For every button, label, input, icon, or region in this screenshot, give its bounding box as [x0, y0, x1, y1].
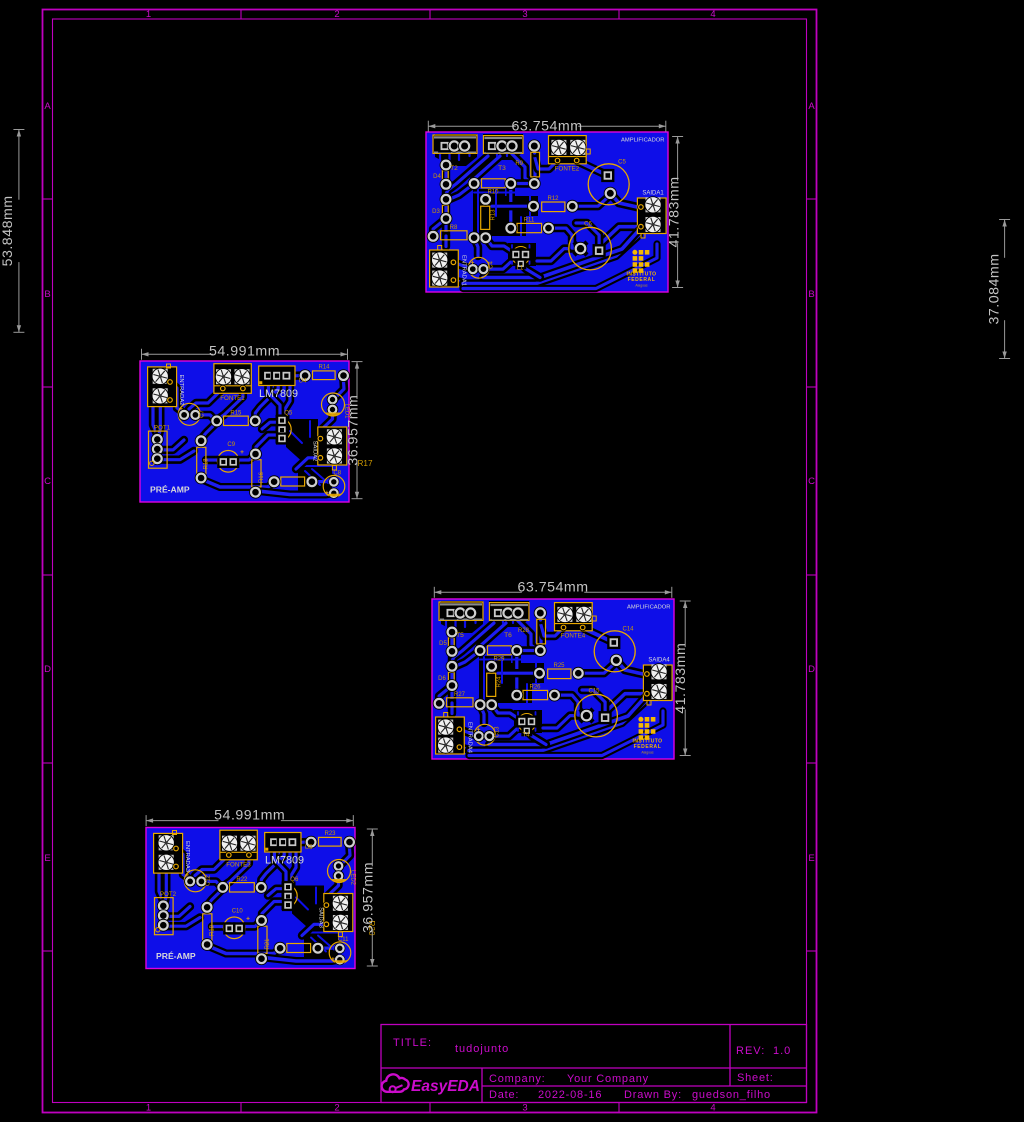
- svg-text:41.783mm: 41.783mm: [667, 176, 683, 247]
- svg-text:C8: C8: [333, 471, 341, 477]
- svg-text:37.084mm: 37.084mm: [987, 253, 1003, 324]
- svg-text:D3: D3: [432, 209, 440, 215]
- svg-text:A: A: [808, 101, 815, 112]
- svg-text:C6: C6: [584, 222, 592, 228]
- svg-text:2: 2: [334, 9, 339, 20]
- svg-text:53.848mm: 53.848mm: [0, 195, 16, 266]
- svg-text:R13: R13: [490, 209, 496, 221]
- svg-text:2022-08-16: 2022-08-16: [538, 1089, 602, 1101]
- svg-text:T2: T2: [450, 165, 458, 172]
- svg-text:R11: R11: [524, 218, 535, 224]
- svg-text:R27: R27: [454, 692, 466, 698]
- svg-text:R16: R16: [259, 471, 265, 483]
- svg-text:Sheet:: Sheet:: [737, 1072, 774, 1084]
- svg-text:PRÉ-AMP: PRÉ-AMP: [150, 485, 190, 495]
- svg-text:TITLE:: TITLE:: [393, 1037, 432, 1049]
- svg-text:36.957mm: 36.957mm: [360, 862, 376, 933]
- svg-text:LM7809: LM7809: [265, 854, 304, 866]
- svg-text:54.991mm: 54.991mm: [209, 344, 280, 360]
- svg-text:1: 1: [146, 9, 151, 20]
- svg-text:R19: R19: [209, 924, 215, 936]
- svg-text:tudojunto: tudojunto: [455, 1043, 509, 1055]
- svg-text:63.754mm: 63.754mm: [518, 580, 589, 596]
- svg-text:1.0: 1.0: [773, 1045, 791, 1057]
- svg-text:E: E: [44, 853, 50, 864]
- svg-text:ENTRADA4: ENTRADA4: [467, 722, 473, 754]
- svg-text:R21: R21: [265, 938, 271, 950]
- svg-text:D: D: [44, 664, 51, 675]
- svg-text:C10: C10: [232, 909, 244, 915]
- svg-text:R15: R15: [230, 411, 242, 417]
- svg-text:C15: C15: [588, 689, 600, 695]
- svg-text:SAIDA3: SAIDA3: [318, 907, 324, 928]
- svg-text:L1: L1: [517, 266, 524, 272]
- svg-text:T4: T4: [522, 733, 530, 739]
- svg-text:Q6: Q6: [290, 877, 299, 883]
- svg-text:LM7809: LM7809: [259, 388, 298, 400]
- svg-text:3: 3: [522, 1103, 527, 1114]
- svg-text:REV:: REV:: [736, 1045, 765, 1057]
- svg-text:T5: T5: [456, 632, 464, 639]
- svg-text:36.957mm: 36.957mm: [346, 395, 362, 466]
- svg-text:PRÉ-AMP: PRÉ-AMP: [156, 951, 196, 961]
- svg-text:POT1: POT1: [154, 424, 171, 431]
- svg-text:D6: D6: [438, 676, 446, 682]
- svg-text:B: B: [808, 289, 814, 300]
- svg-text:SAIDA1: SAIDA1: [642, 191, 664, 197]
- svg-text:R23: R23: [324, 831, 336, 837]
- svg-text:SAIDA2: SAIDA2: [312, 441, 318, 462]
- svg-text:C7: C7: [200, 410, 206, 418]
- svg-text:FONTE2: FONTE2: [555, 166, 580, 173]
- svg-text:ENTRADA1: ENTRADA1: [461, 255, 467, 286]
- svg-text:Your Company: Your Company: [567, 1073, 649, 1085]
- svg-text:T3: T3: [498, 165, 506, 172]
- svg-text:D5: D5: [439, 641, 447, 647]
- svg-text:C11: C11: [338, 937, 349, 943]
- svg-text:2: 2: [334, 1103, 339, 1114]
- svg-text:guedson_filho: guedson_filho: [692, 1089, 771, 1101]
- svg-text:Date:: Date:: [489, 1089, 519, 1101]
- svg-text:D4: D4: [433, 174, 441, 180]
- svg-text:C: C: [44, 476, 51, 487]
- svg-text:B: B: [44, 289, 50, 300]
- svg-text:A: A: [44, 101, 51, 112]
- svg-text:EasyEDA: EasyEDA: [411, 1078, 480, 1095]
- svg-text:4: 4: [710, 9, 715, 20]
- svg-text:C4: C4: [489, 261, 495, 269]
- svg-text:R14: R14: [318, 365, 330, 371]
- svg-text:U5: U5: [305, 845, 313, 851]
- svg-text:R26: R26: [529, 685, 541, 691]
- svg-text:E: E: [808, 853, 814, 864]
- svg-text:41.783mm: 41.783mm: [673, 643, 689, 714]
- svg-text:SAIDA4: SAIDA4: [648, 658, 670, 664]
- svg-text:Drawn By:: Drawn By:: [624, 1089, 682, 1101]
- svg-text:R29: R29: [493, 657, 505, 663]
- svg-text:C14: C14: [622, 627, 634, 633]
- svg-text:63.754mm: 63.754mm: [512, 119, 583, 135]
- svg-text:R25: R25: [553, 663, 565, 669]
- svg-text:R18: R18: [203, 458, 209, 470]
- svg-text:AMPLIFICADOR: AMPLIFICADOR: [627, 605, 670, 611]
- svg-text:3: 3: [522, 9, 527, 20]
- svg-text:4: 4: [710, 1103, 715, 1114]
- svg-text:R10: R10: [487, 190, 499, 196]
- svg-text:1: 1: [146, 1103, 151, 1114]
- svg-text:Company:: Company:: [489, 1073, 546, 1085]
- svg-text:R24: R24: [496, 676, 502, 688]
- svg-text:POT2: POT2: [160, 891, 177, 898]
- svg-text:R28: R28: [518, 628, 530, 634]
- svg-text:R12: R12: [547, 196, 559, 202]
- svg-text:C12: C12: [206, 874, 212, 886]
- svg-text:AMPLIFICADOR: AMPLIFICADOR: [621, 138, 664, 144]
- svg-text:C5: C5: [618, 160, 626, 166]
- svg-text:LED2: LED2: [349, 870, 355, 886]
- svg-text:54.991mm: 54.991mm: [214, 808, 285, 824]
- svg-text:FONTE4: FONTE4: [561, 633, 586, 640]
- svg-text:ENTRADA2: ENTRADA2: [178, 375, 184, 406]
- svg-text:R8: R8: [450, 225, 458, 231]
- svg-text:T6: T6: [504, 632, 512, 639]
- svg-text:U4: U4: [299, 379, 307, 385]
- svg-text:C9: C9: [227, 442, 235, 448]
- svg-text:C13: C13: [495, 726, 501, 738]
- svg-text:Q5: Q5: [284, 411, 293, 417]
- svg-text:R9: R9: [515, 161, 523, 167]
- svg-text:FONTE3: FONTE3: [226, 861, 251, 868]
- svg-text:ENTRADA3: ENTRADA3: [184, 841, 190, 872]
- svg-text:R22: R22: [236, 877, 248, 883]
- svg-text:D: D: [808, 664, 815, 675]
- svg-text:C: C: [808, 476, 815, 487]
- svg-text:FONTE1: FONTE1: [220, 395, 245, 402]
